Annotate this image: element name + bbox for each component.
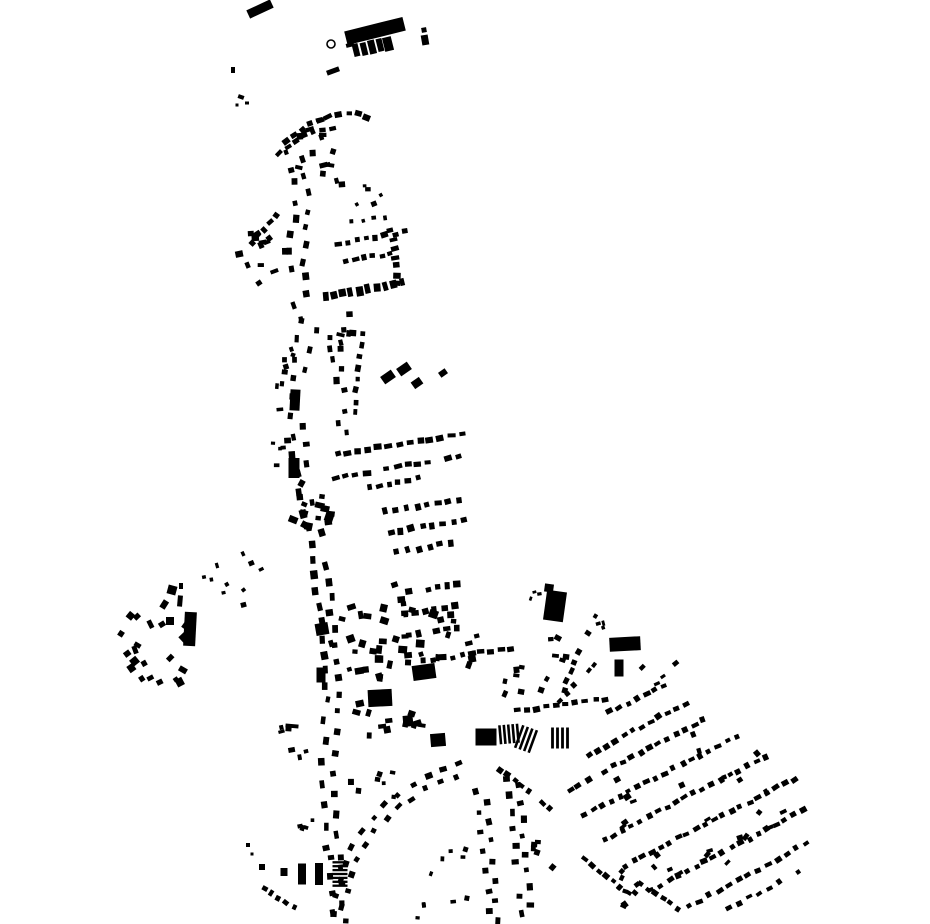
- building: [669, 764, 676, 771]
- building: [278, 729, 285, 734]
- building: [126, 611, 136, 621]
- building: [775, 878, 782, 885]
- building: [596, 868, 603, 875]
- building: [725, 882, 733, 889]
- building: [332, 625, 338, 633]
- building: [729, 844, 736, 851]
- building: [274, 463, 280, 467]
- building: [532, 590, 536, 594]
- building: [360, 331, 365, 336]
- building: [329, 126, 337, 132]
- building: [753, 794, 762, 801]
- building: [743, 762, 750, 770]
- building: [330, 148, 337, 155]
- building: [571, 659, 578, 666]
- building: [694, 864, 700, 870]
- building: [633, 783, 641, 791]
- building: [586, 667, 592, 673]
- building: [485, 888, 492, 894]
- building: [358, 827, 366, 836]
- building: [527, 883, 534, 891]
- building: [462, 846, 468, 852]
- building: [338, 903, 345, 911]
- building: [548, 863, 556, 871]
- building: [502, 678, 507, 684]
- building: [307, 346, 313, 354]
- terrace-stripe: [507, 724, 511, 743]
- building-landmark: [236, 104, 239, 107]
- building: [680, 760, 688, 768]
- building: [296, 494, 303, 501]
- building: [718, 812, 725, 819]
- building: [695, 898, 704, 905]
- building: [519, 910, 525, 918]
- building-landmark: [315, 863, 323, 885]
- building: [353, 856, 360, 863]
- building: [288, 515, 299, 525]
- building: [444, 498, 452, 505]
- building: [448, 433, 456, 437]
- building: [146, 619, 154, 629]
- building: [522, 852, 529, 858]
- building: [717, 849, 725, 857]
- building: [413, 461, 421, 467]
- building: [376, 645, 383, 654]
- building: [367, 732, 372, 738]
- map-canvas: [0, 0, 930, 924]
- building: [602, 836, 608, 842]
- building: [275, 383, 279, 389]
- building: [248, 560, 255, 567]
- building: [404, 546, 410, 554]
- building: [334, 111, 342, 118]
- building: [255, 279, 262, 286]
- building: [513, 666, 519, 673]
- building: [323, 292, 329, 301]
- building: [392, 507, 399, 514]
- building: [437, 778, 444, 784]
- building: [397, 528, 403, 536]
- building: [735, 875, 743, 883]
- building: [305, 209, 311, 215]
- building: [369, 253, 375, 258]
- building-landmark: [281, 868, 288, 876]
- building: [601, 697, 609, 703]
- building: [439, 654, 446, 660]
- building: [638, 749, 646, 757]
- building: [484, 799, 491, 806]
- building: [803, 840, 810, 846]
- building: [363, 613, 372, 620]
- building: [734, 734, 740, 740]
- building: [159, 599, 169, 610]
- building: [591, 662, 597, 668]
- building: [371, 215, 376, 219]
- building: [415, 916, 419, 920]
- building: [347, 843, 355, 852]
- building: [383, 215, 387, 220]
- building: [382, 507, 389, 515]
- building: [439, 521, 446, 526]
- building: [454, 625, 460, 632]
- building: [330, 291, 338, 300]
- building: [633, 695, 641, 703]
- building: [619, 759, 626, 765]
- building: [390, 245, 399, 252]
- building-landmark: [360, 42, 369, 56]
- building: [593, 747, 602, 756]
- building: [354, 667, 364, 675]
- building: [601, 768, 609, 775]
- building: [354, 110, 362, 117]
- building: [486, 908, 493, 914]
- building: [379, 604, 388, 613]
- building: [562, 677, 569, 685]
- building: [283, 149, 289, 155]
- building: [704, 816, 711, 822]
- terrace-stripe: [566, 728, 569, 749]
- building: [727, 771, 733, 777]
- building: [445, 631, 451, 639]
- building: [441, 605, 448, 611]
- building: [355, 700, 364, 708]
- building: [692, 825, 701, 833]
- building: [753, 758, 760, 764]
- building: [241, 587, 246, 592]
- building: [156, 678, 164, 685]
- building: [356, 377, 360, 382]
- building: [496, 766, 504, 774]
- building: [425, 587, 431, 593]
- building: [487, 649, 494, 655]
- building: [123, 649, 132, 658]
- building: [314, 327, 319, 333]
- building: [331, 791, 338, 797]
- building: [372, 235, 378, 241]
- building: [285, 725, 291, 732]
- building: [395, 479, 400, 485]
- building: [408, 606, 416, 613]
- building-landmark: [476, 729, 497, 746]
- building: [474, 633, 480, 638]
- building: [324, 823, 329, 831]
- building: [209, 577, 213, 581]
- building: [698, 786, 705, 793]
- building: [779, 809, 787, 815]
- building: [393, 548, 399, 555]
- building: [673, 705, 680, 712]
- building: [402, 228, 408, 234]
- building: [783, 850, 791, 857]
- building-landmark: [368, 689, 393, 707]
- building: [610, 762, 617, 769]
- building: [303, 241, 310, 249]
- building: [355, 237, 360, 243]
- building-landmark: [245, 102, 249, 105]
- building: [384, 814, 392, 822]
- building: [166, 654, 175, 663]
- building: [384, 443, 393, 449]
- building: [341, 327, 347, 333]
- building: [519, 665, 525, 670]
- building: [240, 551, 245, 557]
- building: [391, 255, 400, 261]
- building-landmark: [166, 584, 177, 595]
- building: [325, 578, 332, 587]
- building: [319, 133, 326, 137]
- building: [477, 810, 482, 815]
- building: [319, 636, 325, 644]
- terrace-stripe: [551, 728, 554, 749]
- building: [362, 113, 371, 122]
- building-landmark: [367, 39, 377, 54]
- building: [327, 163, 335, 168]
- building: [414, 503, 421, 511]
- building: [333, 810, 340, 818]
- building: [734, 768, 742, 776]
- building: [289, 346, 294, 352]
- building: [386, 227, 393, 233]
- building: [594, 697, 599, 702]
- building: [393, 273, 401, 279]
- building: [789, 811, 797, 819]
- building: [361, 254, 367, 261]
- building: [335, 450, 342, 456]
- building: [375, 483, 383, 489]
- building: [524, 867, 529, 872]
- building: [645, 743, 654, 751]
- building-landmark: [298, 864, 306, 885]
- building-landmark: [411, 377, 424, 389]
- building: [319, 494, 325, 499]
- building: [290, 352, 296, 357]
- building: [429, 871, 434, 876]
- building: [292, 904, 298, 910]
- building: [705, 748, 711, 754]
- building: [382, 281, 389, 291]
- building: [390, 770, 396, 775]
- building: [461, 855, 466, 859]
- building: [396, 441, 404, 447]
- building: [416, 546, 424, 554]
- building: [507, 646, 515, 652]
- building: [334, 242, 342, 247]
- building: [660, 895, 667, 902]
- building: [580, 811, 588, 818]
- building: [365, 187, 371, 191]
- building: [387, 482, 392, 488]
- building: [310, 556, 316, 564]
- building: [464, 895, 470, 901]
- building: [288, 167, 295, 174]
- building: [790, 776, 799, 784]
- building: [336, 420, 341, 426]
- building: [335, 708, 340, 713]
- building: [291, 434, 297, 441]
- building: [334, 728, 341, 735]
- building: [309, 499, 315, 506]
- building: [643, 690, 652, 698]
- building: [375, 777, 381, 782]
- building-landmark: [326, 66, 340, 75]
- building: [327, 345, 333, 352]
- building: [276, 407, 283, 411]
- building: [584, 775, 593, 784]
- building: [314, 501, 325, 509]
- building: [404, 652, 412, 659]
- building: [258, 567, 264, 572]
- terrace-stripe: [502, 725, 506, 744]
- building: [444, 454, 453, 462]
- building: [417, 723, 425, 728]
- building: [448, 539, 454, 547]
- building: [699, 716, 706, 723]
- building: [343, 258, 349, 264]
- building: [202, 575, 206, 579]
- building: [347, 667, 353, 672]
- building: [688, 756, 695, 762]
- building: [335, 674, 343, 682]
- building: [444, 582, 449, 589]
- building: [449, 849, 453, 853]
- building: [342, 409, 348, 414]
- building: [525, 787, 532, 794]
- building: [345, 888, 352, 894]
- building: [451, 619, 457, 624]
- building: [672, 660, 680, 667]
- building: [358, 611, 364, 620]
- building: [674, 906, 681, 913]
- building: [764, 861, 772, 868]
- building: [363, 184, 367, 187]
- building: [378, 193, 383, 198]
- building: [394, 802, 402, 810]
- building-landmark: [166, 617, 174, 625]
- building: [352, 649, 358, 654]
- building: [356, 788, 362, 794]
- building: [684, 868, 691, 875]
- building-landmark: [246, 0, 273, 19]
- building: [424, 460, 430, 465]
- building: [138, 675, 145, 683]
- building: [725, 904, 733, 911]
- building: [492, 878, 498, 884]
- building: [736, 804, 742, 810]
- building: [325, 696, 330, 703]
- building: [705, 891, 712, 899]
- building: [459, 431, 466, 436]
- building: [394, 463, 403, 470]
- building-landmark: [421, 27, 427, 33]
- building: [391, 795, 396, 800]
- building: [672, 798, 680, 806]
- building: [336, 332, 345, 337]
- building: [424, 502, 430, 508]
- building: [389, 237, 397, 242]
- building: [766, 885, 773, 891]
- building: [666, 899, 673, 906]
- building: [586, 751, 594, 758]
- building: [306, 120, 313, 127]
- building: [434, 500, 442, 505]
- building: [627, 753, 635, 761]
- building: [511, 859, 519, 865]
- building: [338, 346, 344, 352]
- terrace-stripe: [333, 873, 348, 875]
- building-landmark: [412, 663, 437, 681]
- building: [348, 779, 354, 785]
- building: [346, 311, 353, 317]
- building: [615, 704, 623, 711]
- building: [117, 630, 125, 638]
- building: [689, 789, 696, 796]
- building: [371, 815, 377, 821]
- building: [554, 634, 562, 642]
- building: [319, 780, 325, 789]
- building: [354, 364, 361, 372]
- building: [646, 812, 654, 820]
- building: [292, 178, 298, 185]
- building: [460, 652, 466, 658]
- building: [373, 283, 380, 292]
- building-landmark: [259, 864, 265, 870]
- terrace-stripe: [511, 724, 515, 743]
- building: [451, 602, 459, 610]
- building: [665, 840, 672, 847]
- building: [405, 660, 411, 666]
- building: [774, 855, 783, 863]
- building: [353, 409, 357, 415]
- building: [575, 648, 583, 656]
- building: [716, 887, 725, 895]
- building: [654, 807, 662, 814]
- building: [638, 724, 646, 731]
- building: [654, 740, 662, 747]
- building: [610, 737, 619, 746]
- building: [351, 472, 358, 478]
- building: [537, 686, 544, 693]
- building: [422, 785, 428, 792]
- building: [322, 682, 328, 690]
- building: [513, 673, 520, 677]
- building: [696, 748, 702, 755]
- building: [289, 393, 294, 399]
- building: [404, 478, 411, 484]
- building: [488, 837, 493, 842]
- building: [680, 794, 688, 801]
- building: [354, 400, 359, 406]
- building: [330, 771, 336, 777]
- building: [611, 878, 617, 884]
- building: [544, 676, 550, 683]
- building-landmark: [544, 583, 554, 592]
- building: [274, 895, 281, 902]
- building: [288, 451, 295, 459]
- building: [666, 875, 674, 883]
- building: [429, 522, 435, 529]
- building: [140, 660, 147, 667]
- building: [432, 627, 440, 634]
- building: [450, 900, 456, 904]
- building: [567, 786, 575, 793]
- building: [282, 357, 287, 362]
- building: [630, 799, 637, 804]
- building: [303, 441, 310, 447]
- building: [711, 816, 719, 823]
- building: [302, 367, 308, 374]
- building: [605, 707, 614, 715]
- building: [333, 658, 339, 665]
